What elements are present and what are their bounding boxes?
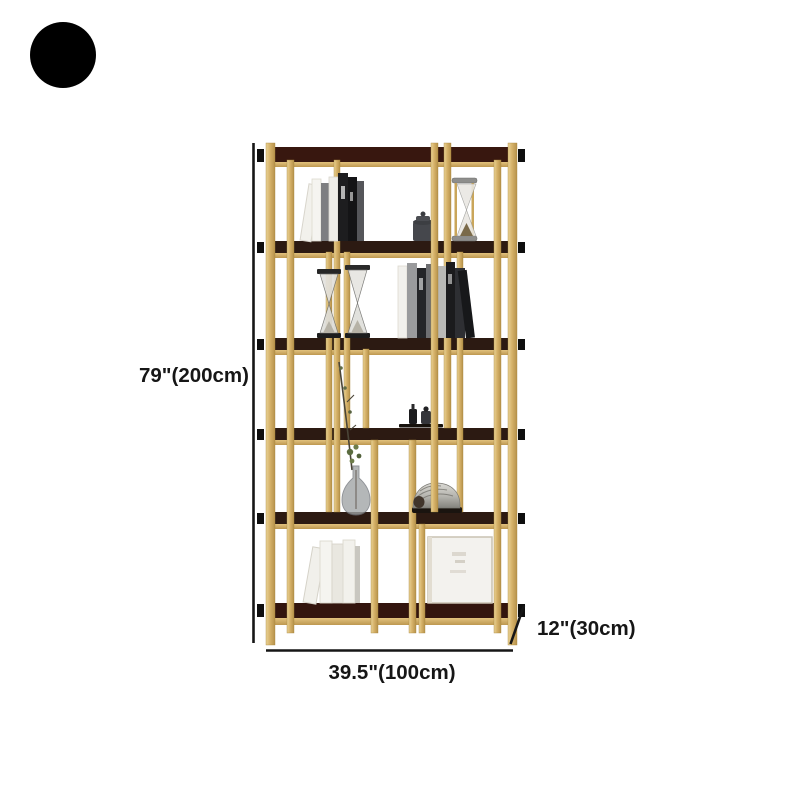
gold-rail	[274, 524, 512, 529]
height-dimension-label: 79"(200cm)	[139, 364, 249, 387]
gold-post	[363, 349, 369, 428]
gold-post	[409, 440, 416, 633]
gold-post	[371, 440, 378, 633]
shelf5-decor	[303, 537, 492, 604]
small-bottles	[409, 404, 431, 424]
books-group	[300, 173, 364, 242]
gold-post	[287, 160, 294, 633]
shelf2-decor	[317, 262, 475, 338]
scene: 79"(200cm) 39.5"(100cm) 12"(30cm)	[0, 0, 800, 800]
shelf-board	[266, 147, 517, 162]
shelf-board	[266, 603, 517, 618]
bookshelf-illustration	[257, 143, 525, 645]
gold-post	[266, 143, 275, 645]
storage-jar	[413, 212, 433, 242]
blank-canvas	[428, 537, 492, 603]
gold-post-front	[431, 143, 438, 512]
width-dimension-label: 39.5"(100cm)	[328, 661, 455, 684]
gold-rail	[274, 162, 510, 167]
gold-base-rail	[266, 618, 517, 625]
leaning-books	[303, 540, 360, 604]
gold-post	[508, 143, 517, 645]
dimension-annotations: 79"(200cm) 39.5"(100cm) 12"(30cm)	[139, 143, 636, 684]
gold-rail	[274, 350, 512, 355]
black-circle-marker	[30, 22, 96, 88]
gold-post	[494, 160, 501, 633]
depth-dimension-label: 12"(30cm)	[537, 617, 636, 640]
shelf-board	[272, 338, 514, 350]
shelf-board	[272, 512, 514, 524]
gold-post	[419, 524, 425, 633]
gold-rail	[274, 253, 512, 258]
shelf-board	[272, 428, 514, 440]
gold-hourglass	[452, 178, 477, 241]
gold-rail	[274, 440, 512, 445]
shelf-board	[272, 241, 514, 253]
product-dimension-image: 79"(200cm) 39.5"(100cm) 12"(30cm)	[0, 0, 800, 800]
